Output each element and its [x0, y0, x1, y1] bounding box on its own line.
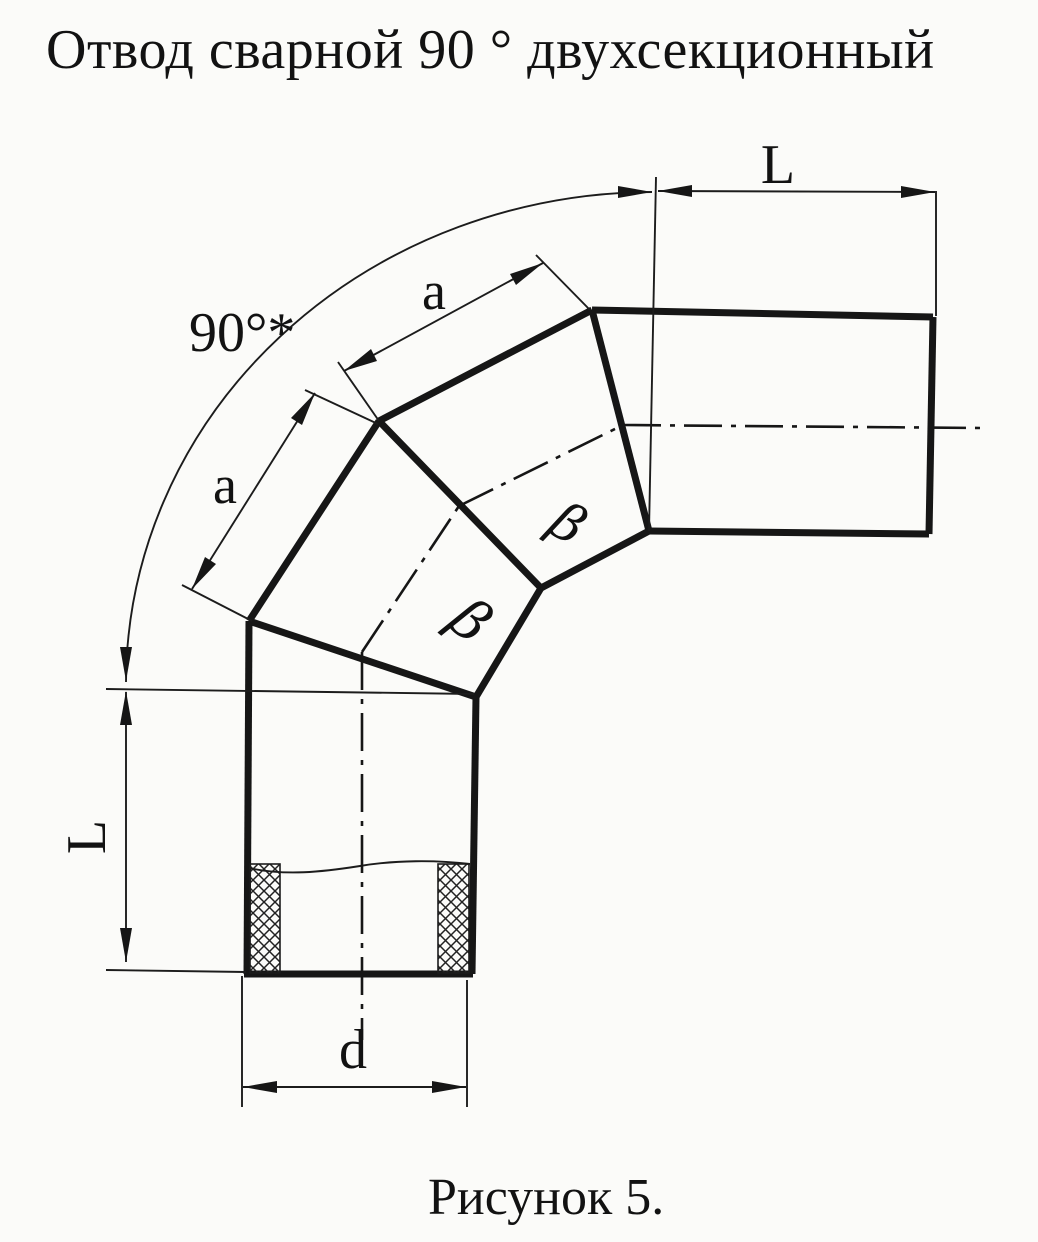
arrowhead-left: [243, 1081, 277, 1093]
arc-arrowhead-top: [618, 186, 652, 198]
bottom-pipe-right-edge: [472, 697, 476, 974]
arc-arrowhead-bottom: [120, 647, 132, 681]
extension-line: [649, 177, 656, 531]
figure-page: Отвод сварной 90 ° двухсекционный: [0, 0, 1038, 1242]
extension-tick: [305, 390, 378, 424]
angle-dimension: [120, 186, 652, 682]
extension-line: [106, 970, 246, 972]
arrowhead-upper: [510, 263, 543, 285]
pipe-wall-section: [249, 861, 470, 973]
figure-caption: Рисунок 5.: [428, 1168, 664, 1227]
bevel-angle-upper-label: β: [538, 490, 597, 558]
bevel-angle-lower-label: β: [436, 584, 504, 656]
pipe-break-line: [249, 861, 470, 872]
wall-hatch-left: [250, 864, 280, 973]
arrowhead-bottom: [120, 928, 132, 962]
elbow-drawing: 90°* L L a a d β β: [0, 0, 1038, 1242]
drawing-labels: 90°* L L a a d β β: [56, 134, 795, 1081]
dimension-a-upper: [338, 255, 590, 421]
dimension-L-left: [106, 689, 474, 972]
wall-hatch-right: [438, 864, 469, 973]
right-pipe-bottom-edge: [649, 531, 929, 534]
right-pipe-top-edge: [592, 310, 933, 317]
dimension-L-top: [649, 177, 936, 531]
angle-arc: [126, 192, 652, 682]
extension-line: [106, 689, 474, 694]
dimension-a-lower: [182, 390, 378, 621]
arrowhead-right: [901, 186, 935, 198]
right-pipe-right-edge: [929, 317, 933, 534]
lower-section-outer-edge: [249, 421, 379, 621]
weld-seam-upper: [592, 310, 649, 531]
bottom-pipe-left-edge: [247, 621, 249, 974]
segment-lower-label: a: [213, 455, 237, 515]
arrowhead-upper: [291, 393, 315, 425]
length-left-label: L: [56, 820, 118, 854]
diameter-label: d: [339, 1019, 367, 1081]
extension-tick: [536, 255, 590, 310]
arrowhead-top: [120, 691, 132, 725]
length-top-label: L: [761, 134, 795, 196]
arrowhead-lower: [344, 349, 377, 371]
arrowhead-right: [432, 1081, 466, 1093]
centerline-upper-diag: [459, 425, 623, 506]
arrowhead-lower: [192, 557, 216, 589]
dimension-line: [192, 393, 315, 589]
dimension-line: [658, 191, 935, 192]
arrowhead-left: [658, 185, 692, 197]
extension-tick: [182, 585, 252, 621]
centerline-horizontal: [623, 425, 980, 428]
upper-section-outer-edge: [379, 310, 592, 421]
angle-label: 90°*: [189, 302, 295, 364]
segment-upper-label: a: [422, 261, 446, 321]
